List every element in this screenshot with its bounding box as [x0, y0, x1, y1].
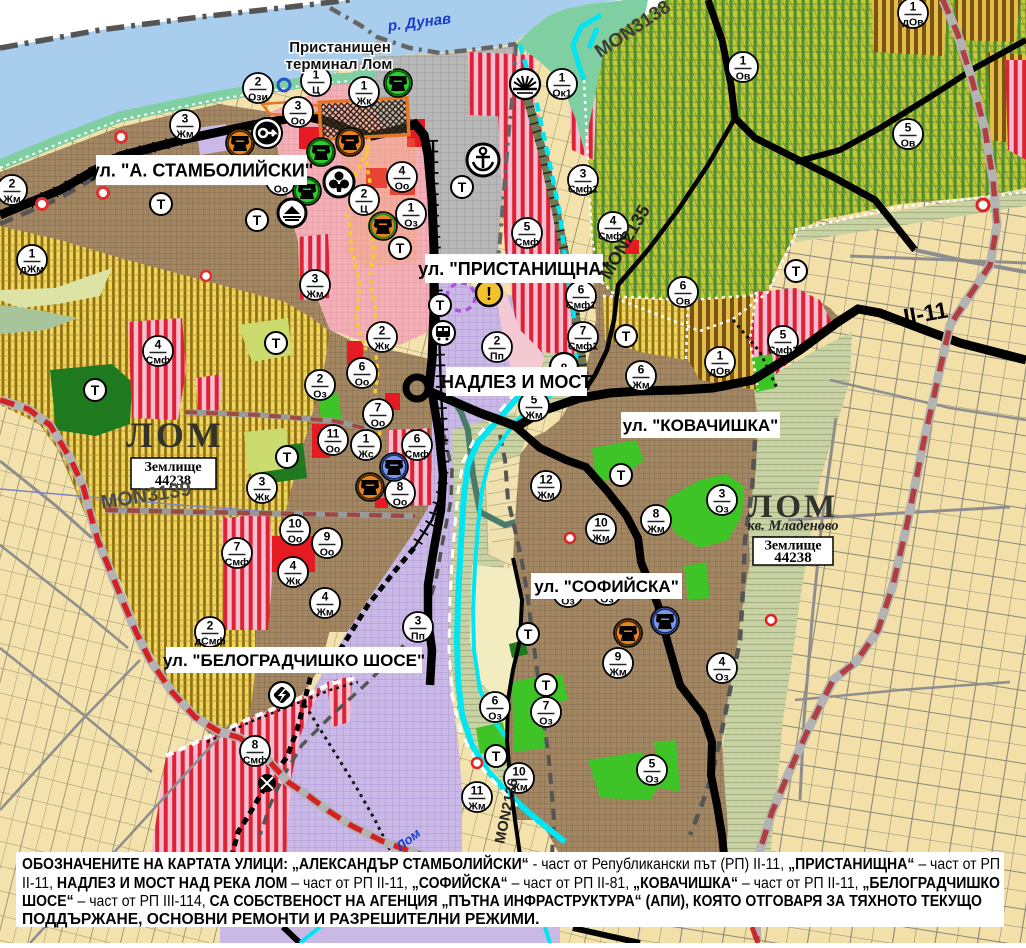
svg-text:44238: 44238 — [774, 550, 812, 566]
svg-text:3: 3 — [182, 112, 189, 126]
svg-text:Оз: Оз — [539, 716, 552, 728]
svg-text:6: 6 — [578, 283, 585, 297]
svg-text:Смф1: Смф1 — [568, 341, 598, 353]
svg-text:Оо: Оо — [274, 184, 289, 196]
svg-text:1: 1 — [559, 71, 566, 85]
svg-text:4: 4 — [155, 338, 162, 352]
svg-text:Ози: Ози — [248, 92, 268, 104]
svg-text:Т: Т — [157, 196, 166, 212]
svg-text:1: 1 — [910, 0, 917, 14]
svg-text:Ов: Ов — [901, 138, 916, 150]
svg-text:Жк: Жк — [374, 341, 390, 353]
svg-text:4: 4 — [399, 164, 406, 178]
svg-text:Т: Т — [492, 748, 501, 764]
svg-text:Жм: Жм — [175, 129, 193, 141]
svg-text:7: 7 — [543, 699, 550, 713]
svg-text:3: 3 — [312, 272, 319, 286]
svg-text:кв. Младеново: кв. Младеново — [747, 518, 838, 534]
svg-text:Оо: Оо — [326, 444, 341, 456]
svg-text:8: 8 — [397, 480, 404, 494]
svg-text:6: 6 — [680, 279, 687, 293]
svg-text:3: 3 — [719, 487, 726, 501]
svg-text:Т: Т — [617, 467, 626, 483]
svg-text:1: 1 — [361, 79, 368, 93]
svg-text:3: 3 — [415, 614, 422, 628]
svg-text:Ов: Ов — [736, 71, 751, 83]
svg-text:7: 7 — [580, 324, 587, 338]
svg-text:ул. "А. СТАМБОЛИЙСКИ": ул. "А. СТАМБОЛИЙСКИ" — [90, 159, 314, 180]
svg-text:Смф: Смф — [243, 755, 267, 767]
svg-text:Жм: Жм — [2, 194, 20, 206]
svg-text:5: 5 — [905, 121, 912, 135]
svg-text:1: 1 — [408, 201, 415, 215]
svg-text:2: 2 — [361, 187, 368, 201]
svg-text:Оз: Оз — [645, 774, 658, 786]
svg-text:Оо: Оо — [355, 377, 370, 389]
svg-text:Смф: Смф — [405, 449, 429, 461]
svg-text:Жм: Жм — [536, 490, 554, 502]
svg-text:ул. "СОФИЙСКА": ул. "СОФИЙСКА" — [534, 577, 679, 596]
svg-text:ПОДДЪРЖАНЕ, ОСНОВНИ РЕМОНТИ И: ПОДДЪРЖАНЕ, ОСНОВНИ РЕМОНТИ И РАЗРЕШИТЕЛ… — [22, 911, 539, 928]
svg-text:Т: Т — [542, 677, 551, 693]
svg-text:11: 11 — [471, 784, 484, 798]
svg-text:9: 9 — [324, 530, 331, 544]
svg-text:Т: Т — [272, 335, 281, 351]
svg-text:Жк: Жк — [356, 96, 372, 108]
svg-text:дОв: дОв — [902, 17, 924, 29]
svg-text:Оз: Оз — [488, 711, 501, 723]
svg-text:ул. "ПРИСТАНИЩНА": ул. "ПРИСТАНИЩНА" — [418, 259, 610, 279]
svg-text:2: 2 — [255, 75, 262, 89]
svg-text:II-11, НАДЛЕЗ И МОСТ НАД РЕКА: II-11, НАДЛЕЗ И МОСТ НАД РЕКА ЛОМ – част… — [22, 873, 1000, 892]
svg-text:Жм: Жм — [591, 533, 609, 545]
svg-text:Т: Т — [396, 240, 405, 256]
svg-text:НАДЛЕЗ И МОСТ: НАДЛЕЗ И МОСТ — [441, 372, 592, 392]
svg-text:Оо: Оо — [288, 534, 303, 546]
svg-text:Т: Т — [436, 297, 445, 313]
svg-text:Пристанищен: Пристанищен — [289, 39, 391, 56]
svg-text:12: 12 — [539, 473, 553, 487]
svg-text:1: 1 — [363, 432, 370, 446]
svg-text:4: 4 — [610, 214, 617, 228]
svg-text:2: 2 — [9, 177, 16, 191]
svg-text:Жм: Жм — [305, 289, 323, 301]
svg-text:Жм: Жм — [608, 667, 626, 679]
svg-text:11: 11 — [327, 427, 340, 441]
svg-text:Оз: Оз — [404, 218, 417, 230]
svg-text:Оо: Оо — [395, 181, 410, 193]
svg-text:8: 8 — [653, 507, 660, 521]
svg-text:Оо: Оо — [291, 116, 306, 128]
svg-text:Т: Т — [253, 212, 262, 228]
svg-text:Ц: Ц — [360, 204, 368, 216]
svg-text:3: 3 — [295, 99, 302, 113]
svg-text:Пп: Пп — [411, 631, 425, 643]
svg-text:Т: Т — [91, 382, 100, 398]
svg-text:1: 1 — [29, 247, 36, 261]
svg-text:6: 6 — [414, 432, 421, 446]
svg-text:дЖм: дЖм — [20, 264, 44, 276]
svg-text:Т: Т — [458, 179, 467, 195]
svg-text:Жм: Жм — [467, 801, 485, 813]
svg-text:Оз: Оз — [715, 504, 728, 516]
svg-text:1: 1 — [717, 349, 724, 363]
svg-text:2: 2 — [207, 619, 214, 633]
svg-text:Оз: Оз — [313, 389, 326, 401]
svg-text:!: ! — [486, 284, 492, 304]
svg-text:4: 4 — [719, 655, 726, 669]
svg-text:7: 7 — [234, 540, 241, 554]
svg-text:ОБОЗНАЧЕНИТЕ НА КАРТАТА УЛИЦИ:: ОБОЗНАЧЕНИТЕ НА КАРТАТА УЛИЦИ: „АЛЕКСАНД… — [22, 854, 1000, 873]
svg-text:ШОСЕ“ – част от РП III-114, СА: ШОСЕ“ – част от РП III-114, СА СОБСТВЕНО… — [22, 893, 982, 910]
svg-text:Ов: Ов — [676, 296, 691, 308]
svg-text:Жм: Жм — [315, 607, 333, 619]
svg-text:2: 2 — [379, 324, 386, 338]
svg-text:Оо: Оо — [393, 497, 408, 509]
svg-text:3: 3 — [580, 167, 587, 181]
svg-text:Оо: Оо — [320, 547, 335, 559]
svg-text:Жм: Жм — [646, 524, 664, 536]
svg-text:Т: Т — [524, 626, 533, 642]
svg-text:ЛОМ: ЛОМ — [126, 415, 224, 455]
svg-text:9: 9 — [615, 650, 622, 664]
svg-text:Смф: Смф — [146, 355, 170, 367]
svg-text:3: 3 — [259, 475, 266, 489]
svg-text:4: 4 — [290, 559, 297, 573]
svg-text:2: 2 — [317, 372, 324, 386]
svg-text:Т: Т — [283, 449, 292, 465]
svg-text:ул. "БЕЛОГРАДЧИШКО ШОСЕ": ул. "БЕЛОГРАДЧИШКО ШОСЕ" — [163, 651, 425, 670]
svg-text:Пп: Пп — [490, 351, 504, 363]
svg-text:Смф1: Смф1 — [768, 345, 798, 357]
svg-text:Смф1: Смф1 — [566, 300, 596, 312]
svg-text:5: 5 — [649, 757, 656, 771]
svg-text:ул. "КОВАЧИШКА": ул. "КОВАЧИШКА" — [623, 416, 779, 435]
svg-text:Смф: Смф — [225, 557, 249, 569]
svg-text:10: 10 — [594, 516, 608, 530]
svg-text:Смф: Смф — [515, 237, 539, 249]
svg-text:Ок1: Ок1 — [552, 88, 571, 100]
svg-text:Т: Т — [622, 328, 631, 344]
svg-text:7: 7 — [375, 401, 382, 415]
svg-text:4: 4 — [322, 590, 329, 604]
svg-text:2: 2 — [494, 334, 501, 348]
svg-text:Ц: Ц — [312, 85, 320, 97]
svg-text:6: 6 — [492, 694, 499, 708]
svg-text:Жм: Жм — [524, 410, 542, 422]
svg-text:Жм: Жм — [631, 380, 649, 392]
svg-text:5: 5 — [524, 220, 531, 234]
svg-text:10: 10 — [512, 765, 526, 779]
svg-text:дОв: дОв — [709, 366, 731, 378]
svg-text:8: 8 — [252, 738, 259, 752]
svg-text:Жс: Жс — [357, 449, 373, 461]
svg-text:1: 1 — [740, 54, 747, 68]
svg-text:Жк: Жк — [254, 492, 270, 504]
svg-text:5: 5 — [780, 328, 787, 342]
svg-text:Оо: Оо — [371, 418, 386, 430]
svg-text:6: 6 — [359, 360, 366, 374]
svg-text:6: 6 — [638, 363, 645, 377]
svg-text:дСмф: дСмф — [194, 636, 225, 648]
svg-text:терминал Лом: терминал Лом — [286, 56, 393, 73]
svg-text:Оз: Оз — [715, 672, 728, 684]
svg-text:Т: Т — [792, 263, 801, 279]
svg-text:10: 10 — [288, 517, 302, 531]
svg-text:Смф1: Смф1 — [568, 184, 598, 196]
svg-text:Жк: Жк — [285, 576, 301, 588]
